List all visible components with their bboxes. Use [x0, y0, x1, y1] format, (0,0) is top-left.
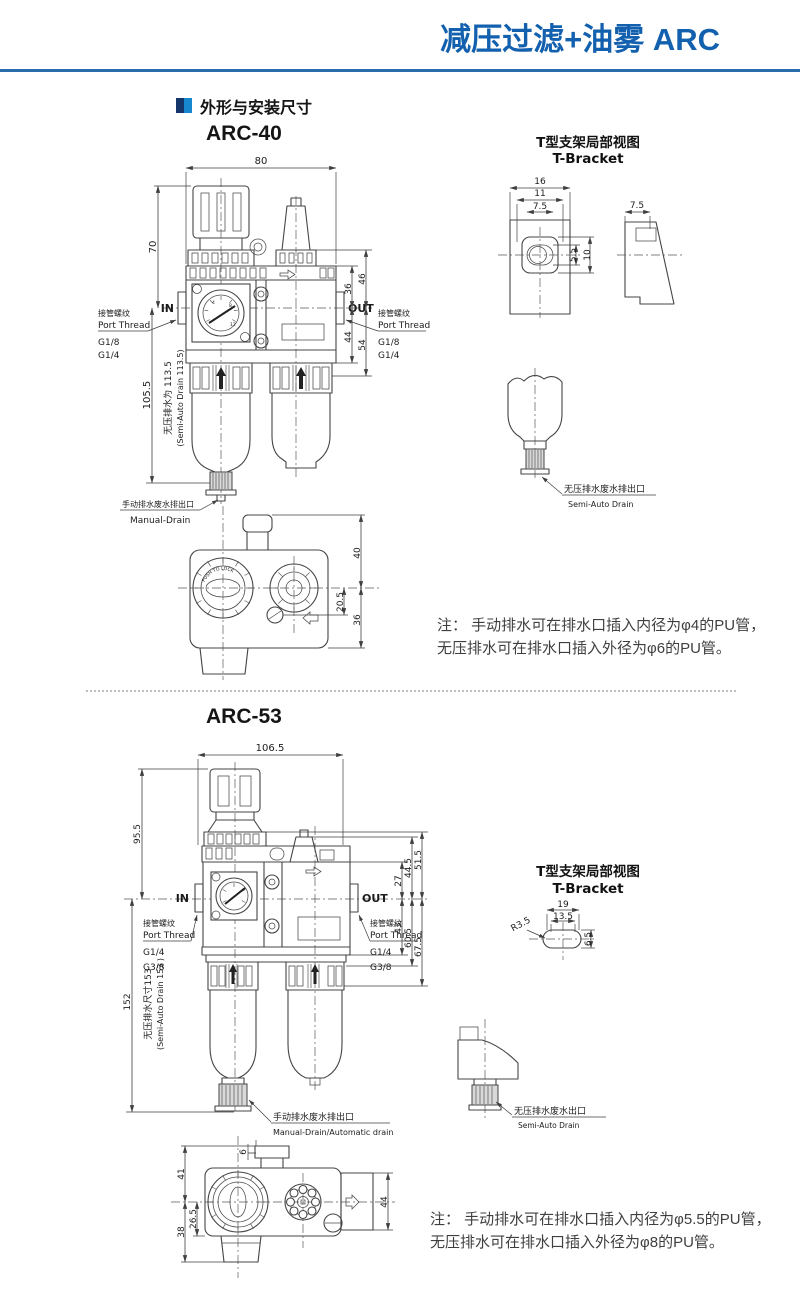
svg-text:接管螺纹: 接管螺纹 — [143, 918, 175, 928]
svg-text:6.5: 6.5 — [584, 932, 594, 946]
svg-text:G3/8: G3/8 — [143, 963, 165, 973]
screw-icon — [265, 875, 279, 889]
svg-text:Semi-Auto Drain: Semi-Auto Drain — [568, 500, 634, 509]
sight-window — [298, 917, 340, 940]
svg-text:R3.5: R3.5 — [510, 916, 533, 934]
flow-arrow-icon — [280, 270, 295, 279]
arc53-bottom-view-drawing: 6 — [143, 1128, 443, 1290]
svg-text:5.5: 5.5 — [569, 248, 579, 262]
flow-arrow-icon — [306, 867, 321, 876]
dim-width: 106.5 — [198, 743, 343, 845]
svg-text:12: 12 — [230, 322, 236, 328]
catalog-page: 减压过滤+油雾 ARC 外形与安装尺寸 ARC-40 80 70 — [0, 0, 800, 1290]
arc40-semi-drain-detail-drawing: 无压排水废水排出口 Semi-Auto Drain — [488, 358, 718, 513]
svg-text:51.5: 51.5 — [414, 850, 424, 870]
bowl-bottom-outline — [508, 368, 562, 478]
port-thread-callout-right: 接管螺纹 Port Thread G1/8 G1/4 — [346, 308, 430, 361]
bracket-title-cn: T型支架局部视图 — [536, 134, 640, 151]
lubricator-bowl — [272, 393, 330, 468]
svg-text:44.5: 44.5 — [404, 858, 414, 878]
svg-text:G1/4: G1/4 — [370, 948, 392, 958]
svg-text:无压排水尺寸153: 无压排水尺寸153 — [142, 968, 154, 1039]
drain-fitting — [215, 1078, 251, 1111]
note-arc40: 注： 手动排水可在排水口插入内径为φ4的PU管， 无压排水可在排水口插入外径为φ… — [437, 614, 765, 660]
svg-text:105.5: 105.5 — [142, 381, 153, 410]
bracket-slot-view: 19 13.5 R3.5 6.5 — [510, 900, 597, 960]
sight-window — [282, 324, 324, 340]
svg-text:11: 11 — [534, 189, 545, 199]
svg-text:6: 6 — [239, 1149, 249, 1155]
bowl-ring-left — [190, 363, 252, 393]
section-separator — [86, 690, 736, 692]
lubricator-body — [266, 280, 336, 350]
dim-right-group: 44 — [373, 1173, 393, 1230]
svg-text:95.5: 95.5 — [133, 824, 143, 844]
section-title: 外形与安装尺寸 — [200, 94, 312, 118]
arc53-front-view-drawing: 106.5 95.5 152 无压排水尺寸153 (Semi-Auto Drai… — [58, 742, 478, 1142]
svg-text:20.5: 20.5 — [336, 592, 346, 612]
port-thread-callout-left: 接管螺纹 Port Thread G1/4 G3/8 — [143, 915, 197, 973]
in-port — [195, 884, 203, 912]
svg-text:7.5: 7.5 — [533, 202, 547, 212]
arc40-bracket-detail-drawing: T型支架局部视图 T-Bracket 16 11 7.5 5.5 10 — [470, 132, 720, 320]
dim-top-height: 95.5 — [133, 769, 208, 899]
latch-arrow-icon — [296, 367, 306, 389]
arc53-semi-drain-detail-drawing: 无压排水废水出口 Semi-Auto Drain — [438, 1003, 668, 1138]
note-arc53: 注： 手动排水可在排水口插入内径为φ5.5的PU管， 无压排水可在排水口插入外径… — [430, 1208, 771, 1254]
model-title-arc53: ARC-53 — [206, 705, 282, 729]
svg-text:无压排水为 113.5: 无压排水为 113.5 — [162, 361, 174, 435]
dim-top-height: 70 — [148, 186, 191, 308]
semi-drain-callout: 无压排水废水排出口 Semi-Auto Drain — [542, 477, 656, 509]
port-thread-callout-left: 接管螺纹 Port Thread G1/8 G1/4 — [98, 308, 176, 361]
svg-text:44: 44 — [344, 331, 354, 343]
body-manifold — [202, 846, 350, 862]
knob-text: PUSH TO LOCK — [201, 566, 236, 583]
header-divider — [0, 69, 800, 72]
bottom-flange — [202, 947, 350, 955]
dim-cap-offset: 6 — [239, 1140, 256, 1160]
dim-right-group: 40 20.5 36 — [272, 515, 365, 648]
bowl-ring-left — [208, 962, 258, 990]
bowl-protrusion — [200, 648, 248, 674]
body-manifold — [186, 266, 336, 280]
latch-arrow-icon — [229, 964, 237, 984]
in-label: IN — [176, 892, 189, 905]
bracket-title-en: T-Bracket — [552, 151, 624, 167]
svg-text:36: 36 — [353, 614, 363, 626]
bowl-ring-right — [270, 363, 332, 393]
svg-text:PUSH TO LOCK: PUSH TO LOCK — [201, 566, 236, 583]
bracket-ring — [250, 239, 266, 255]
svg-text:26.5: 26.5 — [189, 1209, 199, 1229]
svg-text:G1/8: G1/8 — [378, 338, 400, 348]
svg-text:40: 40 — [353, 547, 363, 559]
svg-text:44: 44 — [380, 1196, 390, 1208]
top-cap — [243, 515, 272, 550]
arc40-bottom-view-drawing: PUSH TO LOCK 40 20.5 36 — [148, 498, 438, 683]
svg-text:G1/8: G1/8 — [98, 338, 120, 348]
latch-arrow-icon — [216, 367, 226, 389]
svg-text:G1/4: G1/4 — [143, 948, 165, 958]
svg-text:70: 70 — [148, 241, 159, 254]
bowl-protrusion — [221, 1236, 261, 1262]
svg-text:Port Thread: Port Thread — [378, 321, 430, 331]
svg-text:19: 19 — [557, 900, 569, 910]
screw-icon — [265, 919, 279, 933]
svg-text:41: 41 — [177, 1168, 187, 1179]
svg-text:16: 16 — [534, 177, 546, 187]
svg-text:38: 38 — [177, 1226, 187, 1238]
svg-text:G3/8: G3/8 — [370, 963, 392, 973]
svg-text:Port Thread: Port Thread — [143, 931, 195, 941]
svg-text:无压排水废水出口: 无压排水废水出口 — [514, 1105, 586, 1117]
svg-text:8: 8 — [229, 303, 232, 309]
svg-text:无压排水废水排出口: 无压排水废水排出口 — [564, 483, 645, 495]
dim-left-group: 41 26.5 38 — [177, 1146, 255, 1262]
svg-text:Semi-Auto Drain: Semi-Auto Drain — [518, 1121, 580, 1130]
bowl-bottom-outline — [458, 1019, 518, 1119]
bracket-title-en: T-Bracket — [552, 881, 624, 897]
svg-text:4: 4 — [212, 300, 215, 306]
svg-text:接管螺纹: 接管螺纹 — [98, 308, 130, 318]
svg-text:13.5: 13.5 — [553, 912, 573, 922]
svg-text:10: 10 — [583, 249, 593, 261]
svg-text:7.5: 7.5 — [630, 201, 644, 211]
filter-bowl — [210, 990, 256, 1078]
svg-text:27: 27 — [394, 875, 404, 886]
page-title: 减压过滤+油雾 ARC — [440, 14, 720, 59]
svg-text:80: 80 — [255, 156, 268, 167]
svg-text:手动排水废水排出口: 手动排水废水排出口 — [273, 1111, 354, 1123]
bottom-flange — [186, 350, 336, 363]
svg-text:接管螺纹: 接管螺纹 — [378, 308, 410, 318]
svg-text:106.5: 106.5 — [256, 743, 285, 754]
section-bullet-icon — [176, 98, 192, 113]
svg-text:G1/4: G1/4 — [98, 351, 120, 361]
top-cap — [255, 1146, 289, 1168]
out-label: OUT — [362, 892, 388, 905]
dim-width: 80 — [186, 156, 336, 264]
arc53-bracket-detail-drawing: T型支架局部视图 T-Bracket 19 13.5 R3.5 6.5 — [485, 860, 735, 975]
bracket-title-cn: T型支架局部视图 — [536, 863, 640, 880]
svg-text:54: 54 — [358, 339, 368, 351]
svg-text:Port Thread: Port Thread — [370, 931, 422, 941]
svg-text:接管螺纹: 接管螺纹 — [370, 918, 402, 928]
svg-text:152: 152 — [123, 993, 133, 1010]
svg-text:36: 36 — [344, 283, 354, 295]
pressure-gauge: 4 8 12 — [192, 284, 250, 342]
bracket-front-view: 16 11 7.5 5.5 10 — [498, 177, 594, 318]
in-label: IN — [161, 302, 174, 315]
dim-right-group: 27 44.5 51.5 43 60.5 67.5 — [266, 832, 428, 986]
svg-text:G1/4: G1/4 — [378, 351, 400, 361]
svg-text:46: 46 — [358, 273, 368, 285]
svg-text:(Semi-Auto Drain 113.5): (Semi-Auto Drain 113.5) — [176, 349, 185, 446]
body-outline — [190, 550, 328, 648]
semi-drain-callout: 无压排水废水出口 Semi-Auto Drain — [496, 1102, 606, 1130]
svg-text:Port Thread: Port Thread — [98, 321, 150, 331]
pressure-gauge — [211, 872, 257, 920]
model-title-arc40: ARC-40 — [206, 122, 282, 146]
out-port — [350, 884, 358, 912]
bracket-side-view: 7.5 — [617, 201, 682, 304]
latch-arrow-icon — [311, 964, 319, 984]
flow-arrow-icon — [303, 612, 318, 624]
